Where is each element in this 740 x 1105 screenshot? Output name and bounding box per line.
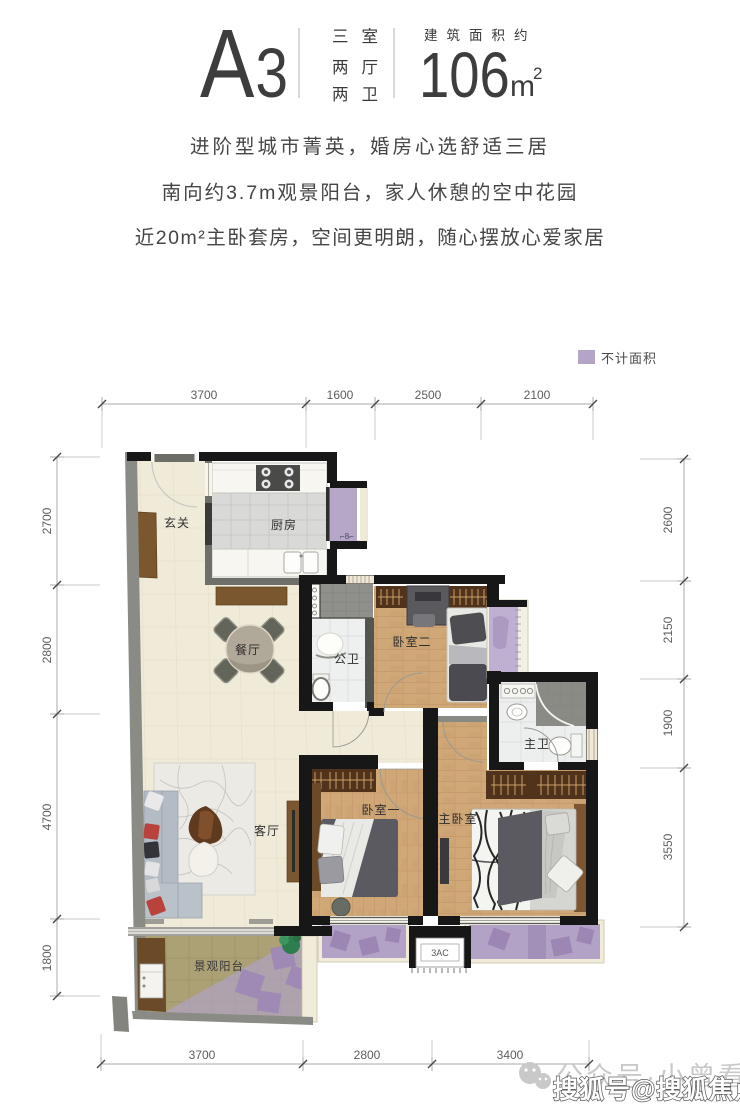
svg-text:3700: 3700 [191,388,218,402]
svg-text:3700: 3700 [189,1048,216,1062]
svg-text:2800: 2800 [40,636,54,663]
svg-text:2600: 2600 [661,506,675,533]
svg-text:2150: 2150 [661,616,675,643]
svg-text:主卧室: 主卧室 [438,811,477,826]
svg-text:2700: 2700 [40,507,54,534]
svg-text:2: 2 [533,64,542,83]
svg-text:A: A [200,9,255,117]
svg-text:2800: 2800 [354,1048,381,1062]
svg-text:玄关: 玄关 [164,515,190,530]
svg-text:客厅: 客厅 [254,823,280,838]
svg-text:3550: 3550 [661,833,675,860]
svg-text:2500: 2500 [415,388,442,402]
svg-text:1600: 1600 [327,388,354,402]
svg-text:三室: 三室 [332,27,391,46]
svg-text:不计面积: 不计面积 [601,351,657,366]
svg-text:3: 3 [255,33,288,112]
svg-text:m: m [510,70,535,103]
svg-text:1800: 1800 [40,944,54,971]
svg-text:3AC: 3AC [431,948,449,958]
svg-text:1900: 1900 [661,709,675,736]
svg-text:主卫: 主卫 [524,737,550,751]
svg-text:两卫: 两卫 [332,86,391,104]
svg-text:搜狐号@搜狐焦点采宾站: 搜狐号@搜狐焦点采宾站 [553,1075,740,1104]
svg-text:卧室二: 卧室二 [392,634,431,649]
svg-text:厨房: 厨房 [271,517,297,532]
svg-text:近20m²主卧套房，空间更明朗，随心摆放心爱家居: 近20m²主卧套房，空间更明朗，随心摆放心爱家居 [135,227,605,249]
svg-text:3400: 3400 [497,1048,524,1062]
svg-text:2100: 2100 [524,388,551,402]
svg-text:106: 106 [419,39,510,111]
svg-text:公卫: 公卫 [334,652,360,666]
svg-text:进阶型城市菁英，婚房心选舒适三居: 进阶型城市菁英，婚房心选舒适三居 [190,136,550,158]
svg-text:两厅: 两厅 [332,59,391,77]
svg-text:景观阳台: 景观阳台 [194,959,244,973]
svg-text:卧室一: 卧室一 [361,802,400,817]
svg-text:4700: 4700 [40,803,54,830]
svg-text:⌐8⌐: ⌐8⌐ [340,532,354,541]
svg-text:餐厅: 餐厅 [235,642,261,657]
svg-text:南向约3.7m观景阳台，家人休憩的空中花园: 南向约3.7m观景阳台，家人休憩的空中花园 [162,182,579,204]
